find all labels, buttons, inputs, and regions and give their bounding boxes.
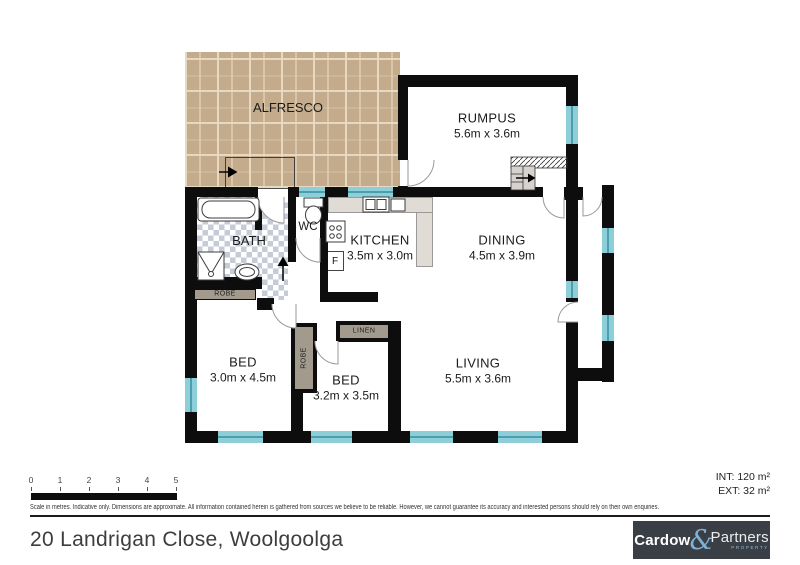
- scale-tick-mark: [89, 487, 90, 491]
- external-area: EXT: 32 m²: [716, 484, 770, 498]
- room-label-alfresco: ALFRESCO: [253, 100, 323, 116]
- floorplan-page: F: [0, 0, 800, 565]
- robe-bed1-label: ROBE: [214, 291, 235, 298]
- scale-tick-label: 1: [58, 475, 63, 485]
- scale-tick-label: 5: [174, 475, 179, 485]
- room-label-dining: DINING 4.5m x 3.9m: [469, 232, 535, 263]
- kitchen-appliance: [391, 199, 405, 211]
- scale-tick-label: 2: [87, 475, 92, 485]
- room-label-wc: WC: [298, 220, 317, 234]
- robe-bed2-label: ROBE: [301, 347, 308, 368]
- linen-label: LINEN: [353, 328, 376, 335]
- stairs: [511, 157, 567, 190]
- room-label-bed2: BED 3.2m x 3.5m: [313, 372, 379, 403]
- rumpus-door-arc: [408, 160, 434, 186]
- shower-drain: [209, 272, 214, 277]
- entry-door-arc: [258, 197, 284, 223]
- logo-word-cardow: Cardow: [634, 532, 690, 549]
- living-name: LIVING: [445, 355, 511, 371]
- bed1-dims: 3.0m x 4.5m: [210, 371, 276, 386]
- living-deck-door-arc: [558, 302, 578, 322]
- entry-arrows: [219, 167, 289, 282]
- scale-tick-label: 3: [116, 475, 121, 485]
- bed1-name: BED: [210, 354, 276, 370]
- kitchen-dims: 3.5m x 3.0m: [347, 249, 413, 264]
- bed2-name: BED: [313, 372, 379, 388]
- deck-door-arc: [583, 197, 602, 216]
- disclaimer-text: Scale in metres. Indicative only. Dimens…: [30, 504, 768, 511]
- floor-areas: INT: 120 m² EXT: 32 m²: [716, 470, 770, 498]
- room-label-bed1: BED 3.0m x 4.5m: [210, 354, 276, 385]
- room-label-rumpus: RUMPUS 5.6m x 3.6m: [454, 110, 520, 141]
- rumpus-dims: 5.6m x 3.6m: [454, 127, 520, 142]
- alfresco-name: ALFRESCO: [253, 100, 323, 116]
- scale-tick-label: 4: [145, 475, 150, 485]
- room-label-bath: BATH: [232, 233, 266, 249]
- living-dims: 5.5m x 3.6m: [445, 372, 511, 387]
- logo-word-partners: Partners: [710, 530, 768, 545]
- cooktop: [326, 221, 345, 242]
- scale-tick-mark: [31, 487, 32, 491]
- bed2-dims: 3.2m x 3.5m: [313, 389, 379, 404]
- entry-arrow-icon: [228, 167, 238, 178]
- logo-partners-block: Partners PROPERTY: [710, 530, 768, 551]
- agency-logo: Cardow & Partners PROPERTY: [633, 521, 770, 559]
- footer-divider: [30, 515, 770, 517]
- logo-tagline: PROPERTY: [731, 546, 768, 551]
- scale-tick-mark: [147, 487, 148, 491]
- rumpus-name: RUMPUS: [454, 110, 520, 126]
- bed2-door-arc: [315, 341, 338, 364]
- scale-tick-label: 0: [29, 475, 34, 485]
- scale-tick-mark: [60, 487, 61, 491]
- property-address: 20 Landrigan Close, Woolgoolga: [30, 528, 343, 552]
- bathtub-inner: [202, 201, 255, 218]
- kitchen-name: KITCHEN: [347, 232, 413, 248]
- sink-bowl-left: [366, 200, 375, 210]
- sink-bowl-right: [377, 200, 386, 210]
- dining-dims: 4.5m x 3.9m: [469, 249, 535, 264]
- wc-name: WC: [298, 220, 317, 234]
- internal-area: INT: 120 m²: [716, 470, 770, 484]
- rumpus-dining-door-arc: [543, 197, 564, 218]
- bath-basin-inner: [240, 268, 255, 277]
- bath-name: BATH: [232, 233, 266, 249]
- scale-bar-rule: [31, 493, 177, 500]
- door-arcs: [258, 160, 602, 364]
- bed1-door-arc: [272, 304, 296, 328]
- hall-arrow-icon: [278, 257, 289, 267]
- scale-tick-mark: [118, 487, 119, 491]
- room-label-kitchen: KITCHEN 3.5m x 3.0m: [347, 232, 413, 263]
- wc-door-arc: [296, 238, 320, 262]
- room-label-living: LIVING 5.5m x 3.6m: [445, 355, 511, 386]
- scale-tick-mark: [176, 487, 177, 491]
- dining-name: DINING: [469, 232, 535, 248]
